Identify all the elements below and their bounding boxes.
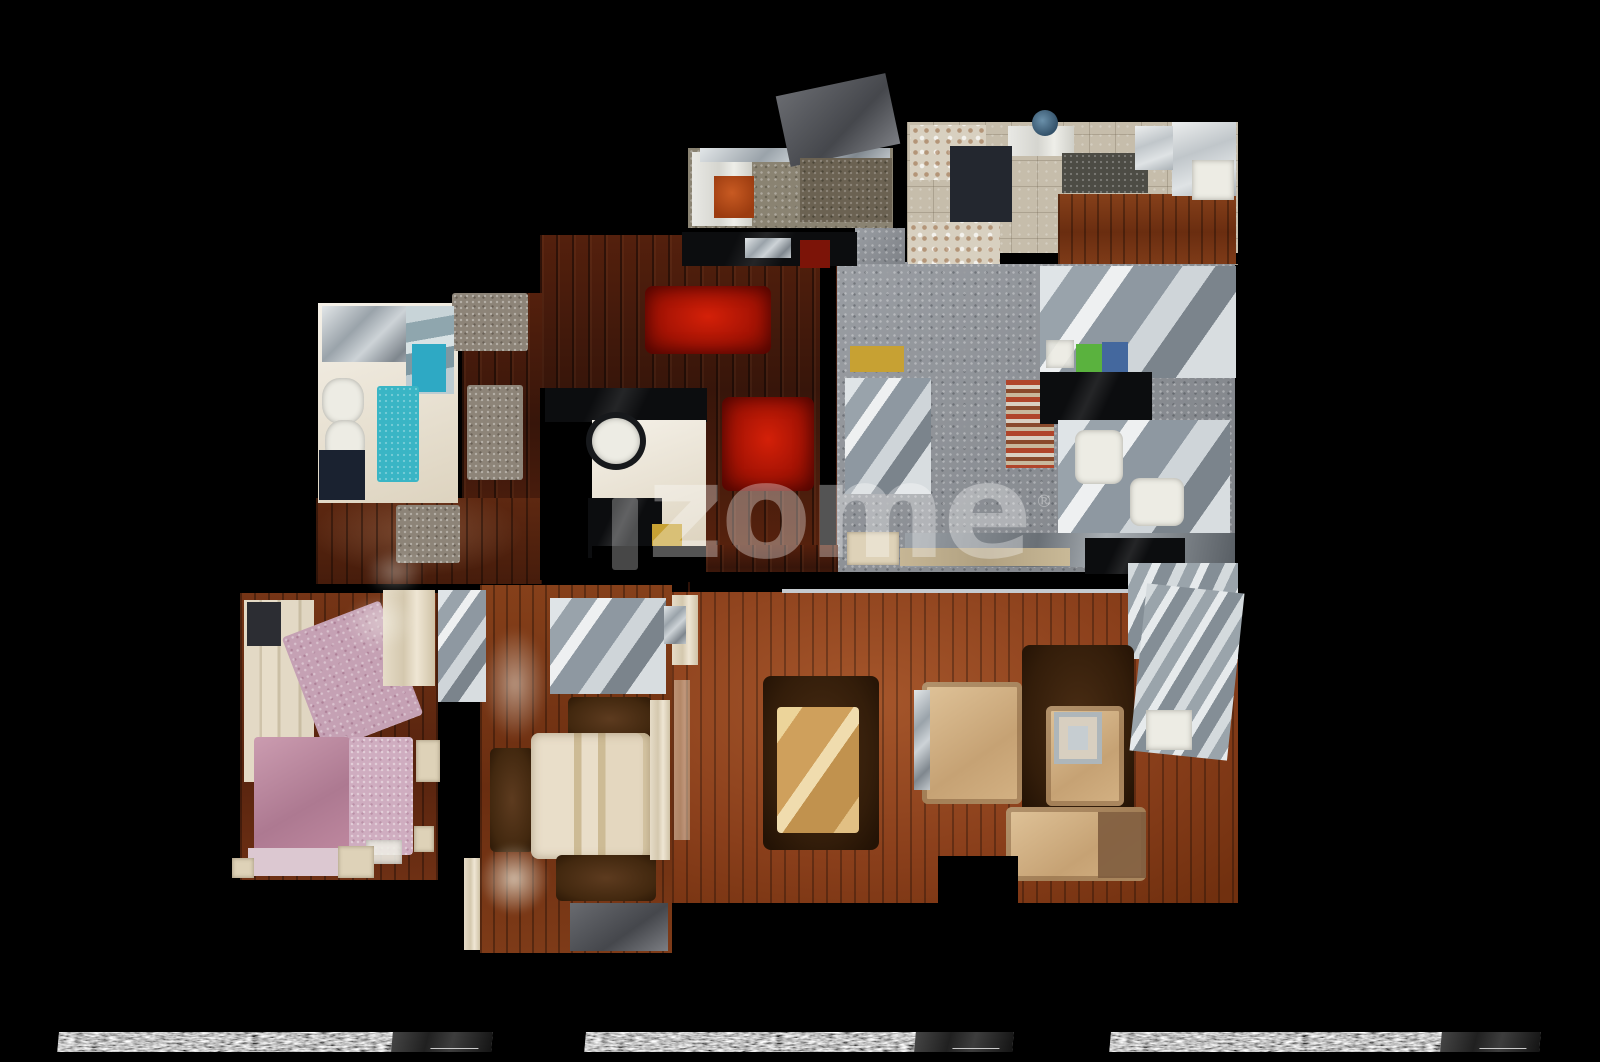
living-chrome-left [664, 606, 686, 644]
cyan-bath-rug [377, 386, 419, 482]
laundry-floor-dark-patch [800, 158, 892, 222]
strip-highlight-line [952, 1048, 999, 1049]
kitchen-wood-table [1058, 194, 1236, 264]
bed2-curtain [650, 700, 670, 860]
bed1-ghost [345, 595, 415, 650]
cyan-towel [412, 344, 446, 392]
ok-yellow-item [850, 346, 904, 372]
bathroom2-yellow-item [652, 524, 682, 548]
kitchen-sink-white [1192, 160, 1234, 200]
strip-dark-segment [914, 1032, 1014, 1052]
living-sofa-bottom-shadow [1098, 812, 1146, 878]
navy-bath-mat [319, 450, 365, 500]
hall-gray-mat-top [452, 293, 528, 351]
wall-hall-kitchen [820, 262, 836, 574]
ok-chair-white-2 [1130, 478, 1184, 526]
toilet [322, 378, 364, 424]
kitchen-chrome-right [1135, 126, 1173, 170]
pink-bed-sheets [248, 848, 352, 876]
living-chrome-strip [914, 690, 930, 790]
kitchen-navy-rug [950, 146, 1012, 222]
ok-blue-cloth [1102, 342, 1128, 372]
bed2-gray-bench [570, 903, 668, 951]
bed2-chrome-desk [550, 598, 666, 694]
closet-white-bottom [464, 858, 480, 950]
strip-highlight-line [1479, 1048, 1526, 1049]
bed1-white-obj-2 [414, 826, 434, 852]
bed2-sheets-floor [479, 843, 549, 915]
kitchen-shelf-clutter-bottom [908, 222, 1000, 264]
strip-dark-segment [1440, 1032, 1541, 1052]
strip-highlight-line [431, 1048, 479, 1049]
wardrobe-dark-shelf [247, 602, 281, 646]
bed2-bed [531, 733, 651, 859]
bed2-rug-left [490, 748, 534, 852]
nightstand-bed1 [338, 846, 374, 878]
corridor-ghost [365, 550, 425, 595]
living-curtain-left-2 [674, 680, 690, 840]
bed2-rug-bottom [556, 855, 656, 901]
hall-runner-rug [467, 385, 523, 480]
ok-green-board [1076, 344, 1104, 372]
pink-bed [254, 737, 350, 865]
ok-chair-white-1 [1075, 430, 1123, 484]
dollhouse-floorplan-view: zome ® [0, 0, 1600, 1062]
ok-dark-counter [1040, 372, 1152, 424]
texture-strip-1 [57, 1032, 493, 1052]
hall-top-red-item [800, 240, 830, 268]
kitchen-pot [1032, 110, 1058, 136]
living-sofa-center [922, 682, 1022, 804]
red-rug-hall [645, 286, 771, 354]
living-white-box-right [1146, 710, 1192, 750]
strip-dark-segment [391, 1032, 493, 1052]
dining-table [777, 707, 859, 833]
red-rug-hall-2 [722, 397, 814, 491]
closet-mirror-chrome [438, 590, 486, 702]
ok-white-sheet [1046, 340, 1074, 368]
bed2-ghost [483, 628, 547, 740]
texture-strip-3 [1109, 1032, 1541, 1052]
laundry-basket-orange [714, 176, 754, 218]
bathroom2-sink [592, 418, 640, 464]
hall-top-chrome [745, 238, 791, 258]
pink-rug-2 [349, 737, 413, 855]
living-frame [1054, 712, 1102, 764]
bathroom2-south-wall [592, 546, 706, 582]
living-corner-void [938, 856, 1018, 906]
bed1-white-obj [416, 740, 440, 782]
bed1-door-step [232, 858, 254, 878]
ok-bottom-beige-box [847, 532, 899, 565]
texture-strip-2 [584, 1032, 1014, 1052]
ok-beige-counter-bottom [900, 548, 1070, 566]
open-kitchen-floor-notch [855, 228, 905, 264]
ok-chrome-left [845, 378, 931, 494]
